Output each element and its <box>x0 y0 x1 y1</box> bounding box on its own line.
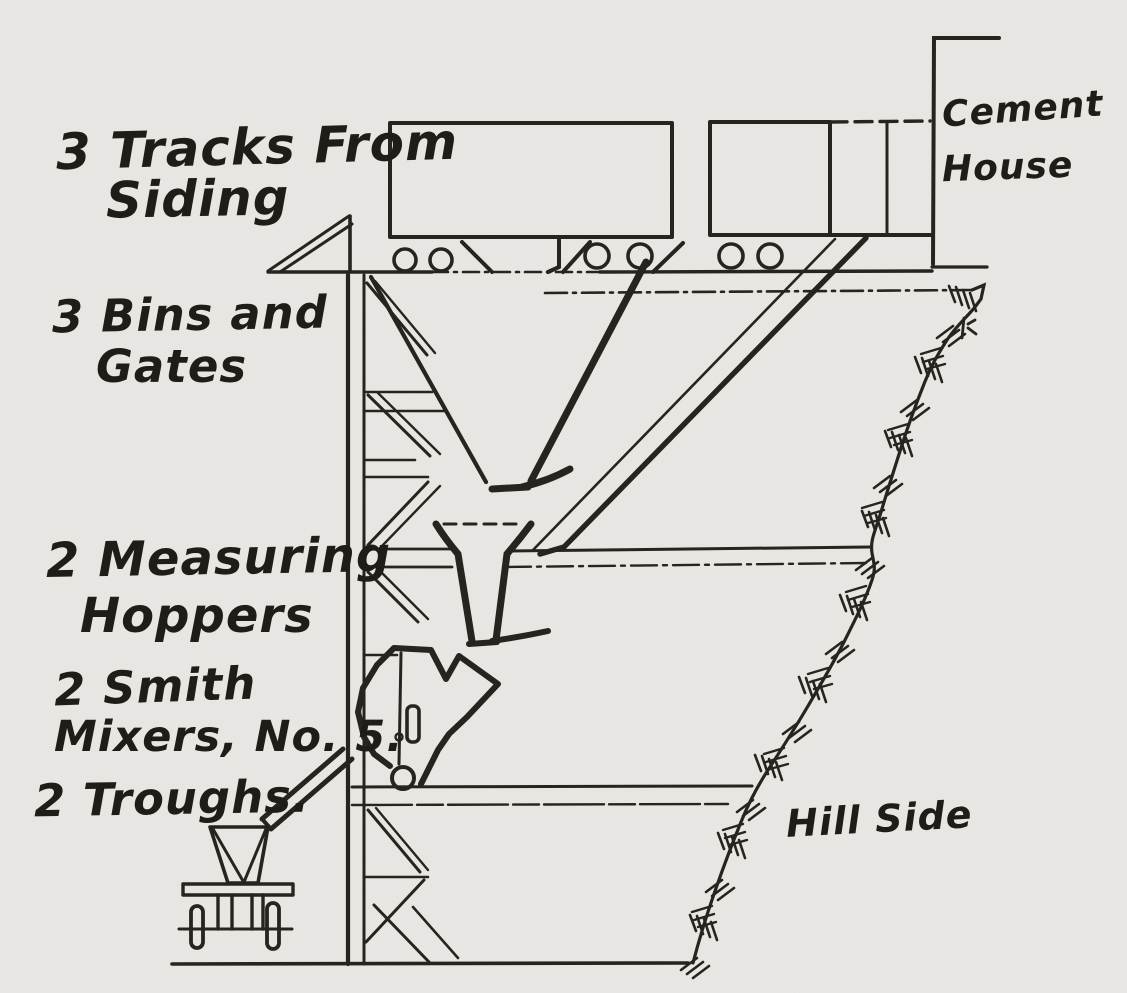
scanned-diagram-page: 3 Tracks From Siding 3 Bins and Gates 2 … <box>0 0 1127 993</box>
scan-artifact-marks <box>25 2 1068 10</box>
label-tracks-from-siding-line2: Siding <box>106 172 290 225</box>
label-smith-mixers-line2: Mixers, No. 5. <box>54 716 404 759</box>
label-troughs: 2 Troughs. <box>34 774 311 824</box>
label-measuring-hoppers-line1: 2 Measuring <box>46 531 392 585</box>
hillside-hatching <box>681 286 976 978</box>
ground-line <box>172 963 688 964</box>
rail-car-3-partial <box>830 121 931 235</box>
timber-tower <box>348 275 458 964</box>
label-hill-side: Hill Side <box>785 795 973 843</box>
car-wheels <box>394 244 782 271</box>
hillside-cut <box>681 285 984 978</box>
label-bins-and-gates-line2: Gates <box>96 344 247 389</box>
label-measuring-hoppers-line2: Hoppers <box>80 592 314 640</box>
measuring-hopper-funnel <box>436 524 548 644</box>
rail-car-2 <box>710 122 830 235</box>
storage-bin-funnel <box>371 262 646 489</box>
label-smith-mixers-line1: 2 Smith <box>53 660 257 712</box>
label-bins-and-gates-line1: 3 Bins and <box>52 290 329 340</box>
label-cement-house-line2: House <box>941 148 1074 189</box>
mixer-floor-lines <box>352 786 752 805</box>
car-gate-chutes <box>462 240 683 272</box>
hopper-floor-lines <box>365 547 870 567</box>
hillside-edge <box>693 285 984 963</box>
concrete-cart <box>179 827 293 949</box>
inclined-chute <box>533 238 866 554</box>
grade-line <box>545 290 972 293</box>
